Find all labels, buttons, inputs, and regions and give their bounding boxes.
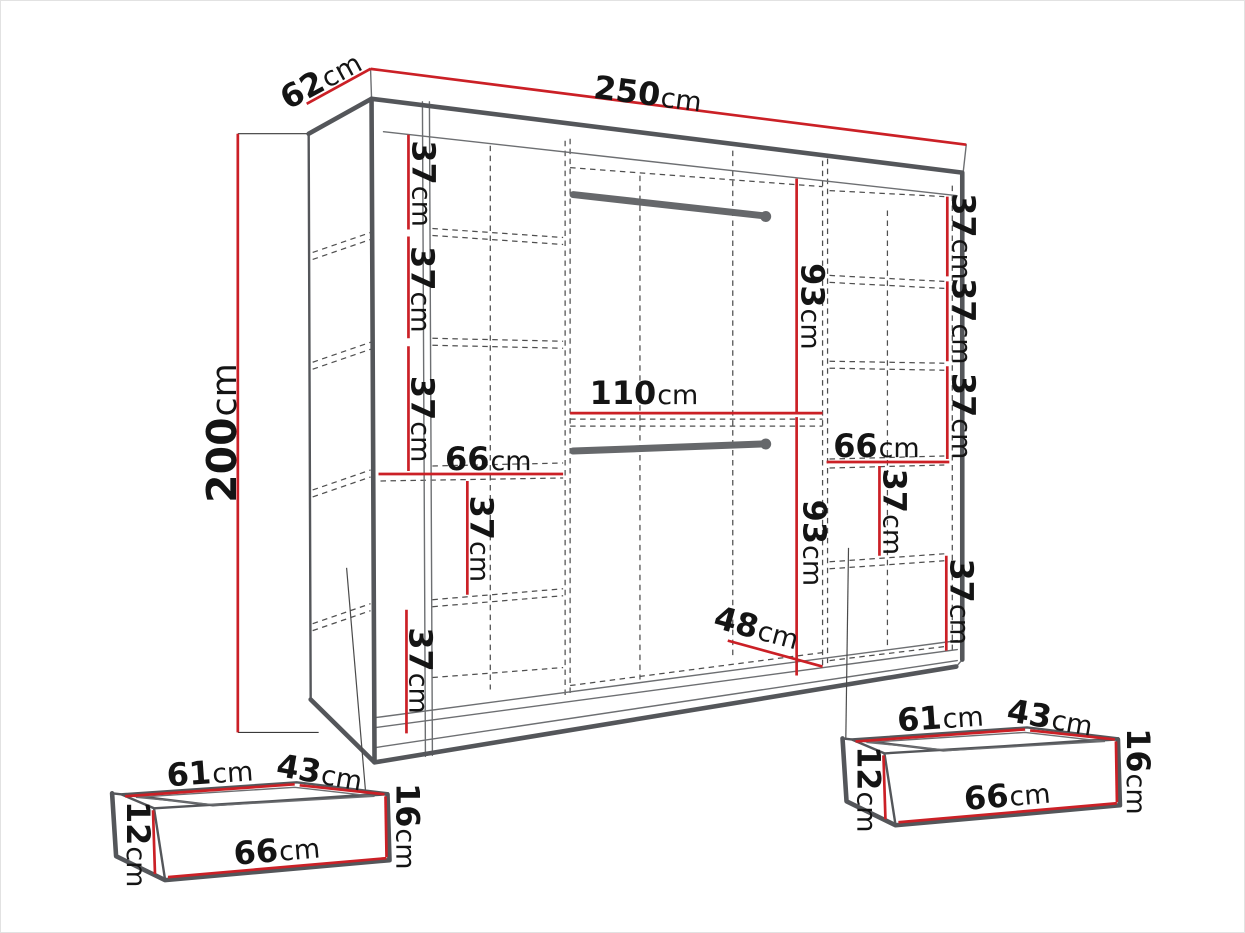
lower-hanging-rail — [573, 444, 762, 451]
label-left-gap-2: 37cm — [403, 246, 441, 332]
label-right-gap-1: 37cm — [944, 193, 982, 279]
label-left-drawer-12: 12cm — [119, 801, 157, 887]
label-right-gap-2: 37cm — [944, 278, 982, 364]
label-left-gap-4: 37cm — [462, 496, 500, 582]
diagram-page: 62cm 250cm 200cm 37cm 37cm 37cm 66cm 37c… — [0, 0, 1245, 933]
left-drawer-dim-16 — [386, 796, 387, 857]
right-drawer-dim-16 — [1116, 741, 1117, 802]
extension-lines — [238, 134, 319, 733]
label-right-gap-4: 37cm — [875, 469, 913, 555]
upper-hanging-rail — [573, 195, 762, 216]
label-width-250: 250cm — [592, 68, 705, 120]
label-left-drawer-61: 61cm — [165, 750, 254, 794]
label-height-200: 200cm — [198, 363, 246, 503]
label-right-gap-3: 37cm — [944, 373, 982, 459]
label-left-drawer-16: 16cm — [388, 783, 426, 869]
label-right-shelf-66: 66cm — [833, 427, 919, 465]
label-left-gap-5: 37cm — [401, 627, 439, 713]
wardrobe-dimension-diagram: 62cm 250cm 200cm 37cm 37cm 37cm 66cm 37c… — [1, 1, 1244, 932]
label-right-drawer-61: 61cm — [896, 695, 985, 739]
label-right-gap-5: 37cm — [942, 558, 980, 644]
upper-rail-end-knob — [760, 211, 771, 222]
label-right-drawer-16: 16cm — [1119, 728, 1157, 814]
label-left-gap-1: 37cm — [404, 140, 442, 226]
label-left-shelf-66: 66cm — [445, 440, 531, 478]
right-drawer-leader-line — [846, 548, 849, 760]
label-depth-62: 62cm — [274, 42, 368, 117]
label-right-drawer-12: 12cm — [849, 746, 887, 832]
lower-rail-end-knob — [760, 439, 771, 450]
label-center-93-top: 93cm — [794, 263, 832, 349]
label-center-110: 110cm — [590, 374, 699, 412]
label-left-gap-3: 37cm — [403, 376, 441, 462]
label-center-93-bottom: 93cm — [796, 500, 834, 586]
